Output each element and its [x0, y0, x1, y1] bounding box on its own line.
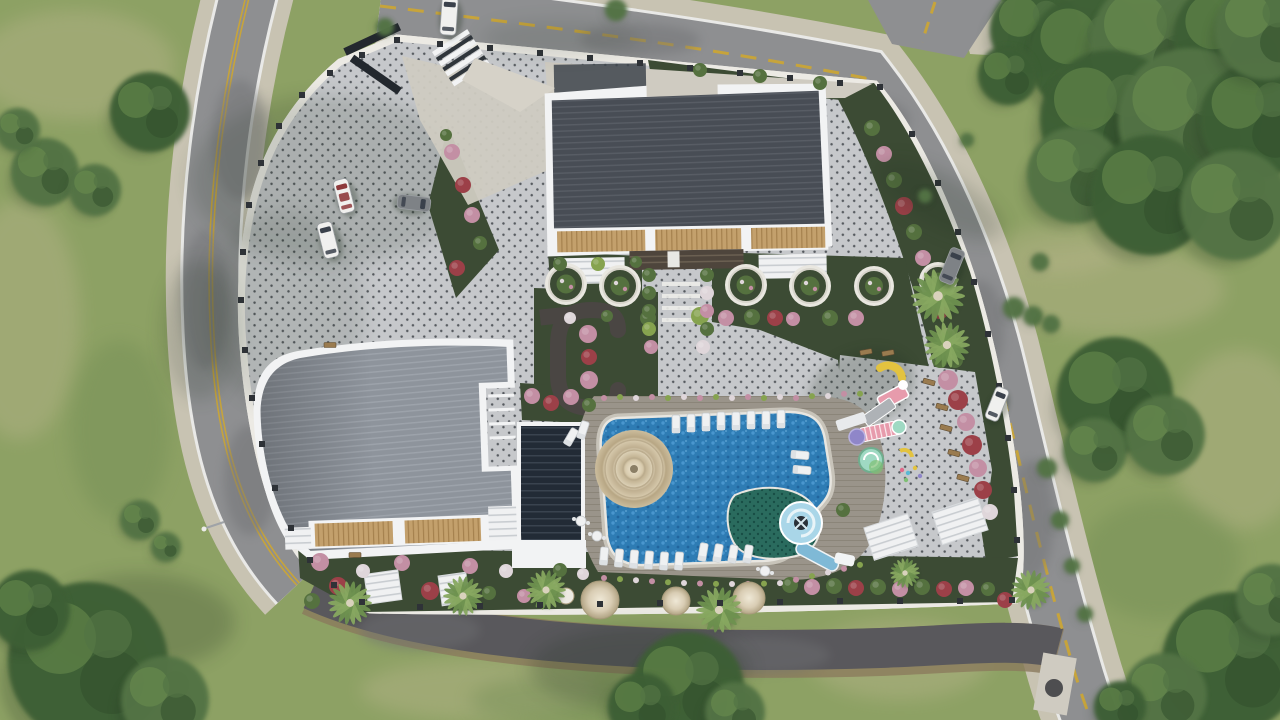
shade-cone-canopy	[595, 430, 673, 508]
fence-post	[299, 92, 305, 98]
shrub	[700, 304, 714, 318]
fence-post	[777, 599, 783, 605]
shrub	[848, 580, 864, 596]
shrub	[777, 394, 783, 400]
fence-post	[359, 599, 365, 605]
fence-post	[246, 202, 252, 208]
shrub	[915, 250, 931, 266]
fence-post	[837, 80, 843, 86]
shrub	[767, 310, 783, 326]
shrub	[777, 580, 783, 586]
green-pad	[869, 460, 883, 474]
planter	[599, 265, 641, 307]
pergola-deck	[512, 540, 586, 568]
block-a-entry-steps	[629, 249, 743, 270]
shrub	[876, 146, 892, 162]
fence-post	[737, 70, 743, 76]
sun-lounger	[747, 411, 755, 429]
shrub	[543, 395, 559, 411]
shrub	[753, 69, 767, 83]
shrub	[969, 459, 987, 477]
shrub	[982, 504, 998, 520]
block-a-balcony-1	[557, 230, 645, 253]
fence-post	[657, 600, 663, 606]
shrub	[948, 390, 968, 410]
site-plan-render	[0, 0, 1280, 720]
cone-apex	[630, 465, 638, 473]
shrub	[981, 582, 995, 596]
fence-post	[258, 160, 264, 166]
sun-lounger	[644, 551, 654, 570]
shrub	[809, 573, 815, 579]
planter	[725, 264, 767, 306]
sun-lounger	[599, 547, 609, 566]
shrub	[455, 177, 471, 193]
shrub	[693, 63, 707, 77]
shrub	[841, 391, 847, 397]
shrub	[936, 581, 952, 597]
block-b-balcony-1	[315, 521, 394, 547]
shrub	[473, 236, 487, 250]
shrub	[697, 581, 703, 587]
shrub	[642, 268, 656, 282]
sun-lounger	[793, 465, 812, 475]
planter	[854, 266, 894, 306]
shrub	[804, 579, 820, 595]
shrub	[304, 593, 320, 609]
shrub	[665, 579, 671, 585]
shrub	[642, 304, 656, 318]
fence-post	[897, 598, 903, 604]
shrub	[793, 577, 799, 583]
fence-post	[307, 557, 313, 563]
shrub	[718, 310, 734, 326]
garden-dome	[662, 587, 690, 615]
sun-lounger	[762, 411, 770, 429]
shrub	[649, 578, 655, 584]
shrub	[601, 575, 607, 581]
fence-post	[249, 395, 255, 401]
shrub	[642, 322, 656, 336]
shrub	[577, 568, 589, 580]
shrub	[809, 393, 815, 399]
shrub	[633, 577, 639, 583]
sun-lounger	[732, 412, 740, 430]
block-b-terrace-east	[488, 506, 517, 541]
sun-lounger	[614, 549, 624, 568]
shrub	[601, 395, 607, 401]
shrub	[745, 394, 751, 400]
fence-post	[327, 70, 333, 76]
sun-lounger	[674, 552, 684, 571]
fence-post	[637, 60, 643, 66]
bench	[349, 553, 361, 558]
fence-post	[238, 297, 244, 303]
shrub	[857, 562, 863, 568]
shrub	[356, 564, 370, 578]
street-lamp-head	[202, 527, 207, 532]
fence-post	[276, 123, 282, 129]
sun-lounger	[672, 415, 680, 433]
shrub	[864, 120, 880, 136]
shrub	[464, 207, 480, 223]
sun-lounger	[659, 552, 669, 571]
utility-hatch	[1045, 679, 1063, 697]
planter	[789, 265, 831, 307]
shrub	[848, 310, 864, 326]
shrub	[729, 395, 735, 401]
fence-post	[717, 600, 723, 606]
shrub	[580, 371, 598, 389]
shrub	[642, 286, 656, 300]
sun-lounger	[717, 412, 725, 430]
shrub	[581, 349, 597, 365]
shrub	[870, 579, 886, 595]
shrub	[744, 309, 760, 325]
shrub	[713, 581, 719, 587]
sun-lounger	[629, 550, 639, 569]
sun-lounger	[702, 413, 710, 431]
shrub	[563, 389, 579, 405]
shrub	[440, 129, 452, 141]
block-a-balcony-2	[655, 228, 741, 250]
shrub	[649, 394, 655, 400]
shrub	[394, 555, 410, 571]
block-a-balcony-3	[751, 227, 825, 249]
fence-post	[1005, 435, 1011, 441]
shrub	[444, 144, 460, 160]
shrub	[974, 481, 992, 499]
shrub	[591, 257, 605, 271]
shrub	[665, 395, 671, 401]
shrub	[633, 395, 639, 401]
shrub	[696, 340, 710, 354]
shrub	[630, 256, 642, 268]
sun-lounger	[777, 410, 785, 428]
fence-post	[597, 601, 603, 607]
shrub	[700, 286, 714, 300]
shrub	[601, 310, 613, 322]
pergola-3	[364, 570, 402, 604]
pool-complex	[512, 396, 885, 580]
fence-post	[1014, 537, 1020, 543]
fence-post	[417, 604, 423, 610]
shrub	[579, 325, 597, 343]
playhouse-roof	[898, 380, 908, 390]
shrub	[564, 312, 576, 324]
fence-post	[537, 602, 543, 608]
sun-lounger	[687, 414, 695, 432]
shrub	[311, 553, 329, 571]
aerial-render	[0, 0, 1280, 720]
shrub	[906, 224, 922, 240]
fence-post	[359, 52, 365, 58]
shrub	[462, 558, 478, 574]
fence-post	[587, 55, 593, 61]
block-b-balcony-2	[404, 518, 481, 544]
shrub	[713, 394, 719, 400]
fence-post	[331, 582, 337, 588]
shrub	[825, 393, 831, 399]
shrub	[421, 582, 439, 600]
mint-cone	[892, 420, 906, 434]
bench	[324, 343, 336, 348]
shrub	[482, 586, 496, 600]
shrub	[958, 580, 974, 596]
shrub	[962, 435, 982, 455]
shrub	[826, 578, 842, 594]
shrub	[582, 398, 596, 412]
shrub	[857, 391, 863, 397]
fence-post	[877, 84, 883, 90]
block-a-step-rail	[667, 251, 679, 267]
shrub	[644, 340, 658, 354]
shrub	[681, 394, 687, 400]
fence-post	[1009, 597, 1015, 603]
purple-mat	[849, 429, 865, 445]
shrub	[617, 576, 623, 582]
dark-pergola	[519, 424, 583, 542]
shrub	[813, 76, 827, 90]
shrub	[617, 394, 623, 400]
shrub	[825, 569, 831, 575]
fence-post	[477, 603, 483, 609]
planter	[545, 263, 587, 305]
fence-post	[787, 75, 793, 81]
shrub	[499, 564, 513, 578]
shrub	[822, 310, 838, 326]
shrub	[700, 268, 714, 282]
fence-post	[957, 598, 963, 604]
shrub	[793, 395, 799, 401]
shrub	[841, 566, 847, 572]
garden-dome	[581, 581, 619, 619]
fence-post	[242, 347, 248, 353]
fence-post	[259, 441, 265, 447]
fence-post	[1011, 487, 1017, 493]
shrub	[553, 257, 567, 271]
shrub	[957, 413, 975, 431]
shrub	[449, 260, 465, 276]
shrub	[938, 370, 958, 390]
fence-post	[240, 249, 246, 255]
fence-post	[971, 279, 977, 285]
shrub	[761, 395, 767, 401]
fence-post	[909, 131, 915, 137]
fence-post	[272, 485, 278, 491]
shrub	[729, 581, 735, 587]
shrub	[761, 581, 767, 587]
sun-lounger	[791, 450, 810, 460]
shrub	[681, 580, 687, 586]
shrub	[524, 388, 540, 404]
fence-post	[437, 41, 443, 47]
fence-post	[837, 598, 843, 604]
shrub	[836, 503, 850, 517]
shrub	[697, 395, 703, 401]
fence-post	[985, 331, 991, 337]
shrub	[786, 312, 800, 326]
fence-post	[394, 37, 400, 43]
shrub	[700, 322, 714, 336]
fence-post	[687, 65, 693, 71]
fence-post	[288, 525, 294, 531]
